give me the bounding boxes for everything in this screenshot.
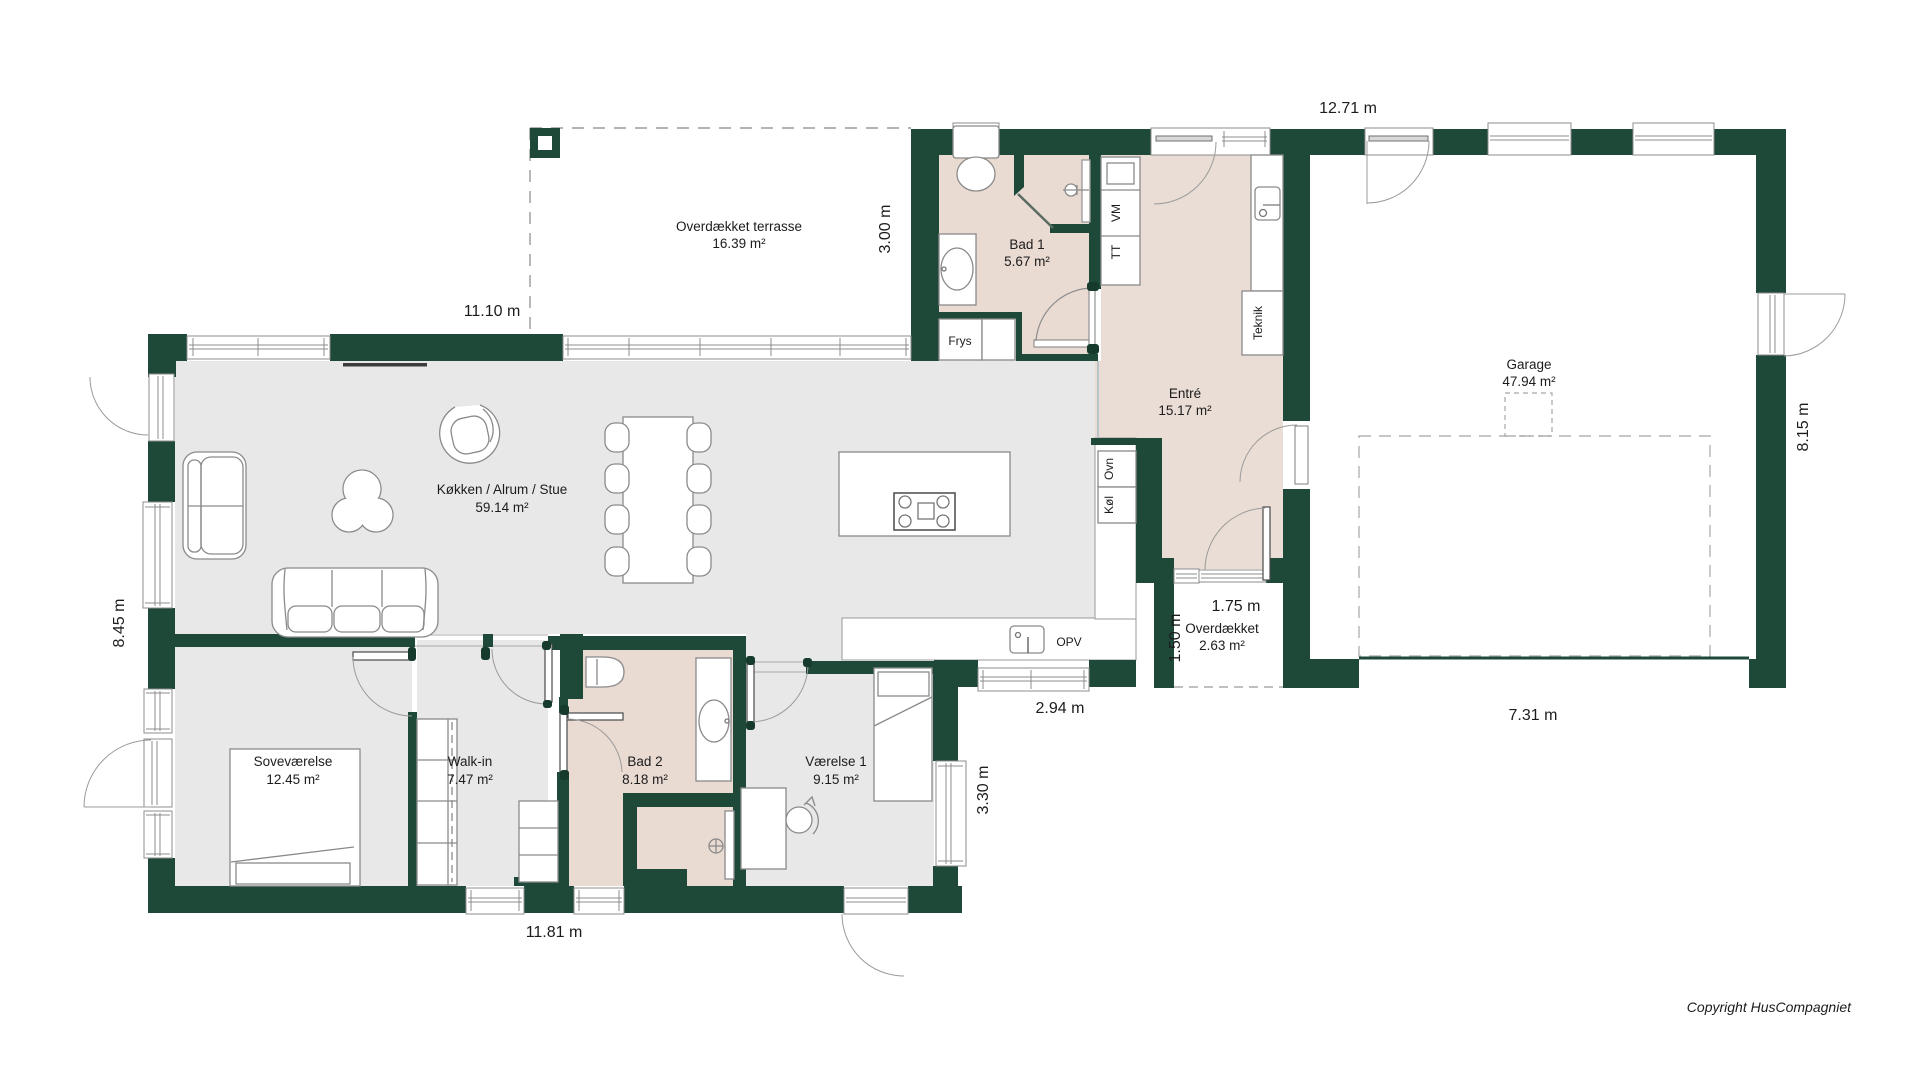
- svg-text:Køkken / Alrum / Stue: Køkken / Alrum / Stue: [437, 482, 568, 497]
- svg-text:2.94 m: 2.94 m: [1036, 700, 1085, 717]
- svg-text:47.94 m²: 47.94 m²: [1502, 374, 1556, 389]
- svg-text:Teknik: Teknik: [1251, 305, 1265, 340]
- svg-text:11.81 m: 11.81 m: [526, 924, 583, 941]
- svg-text:Ovn: Ovn: [1102, 458, 1116, 480]
- svg-text:Frys: Frys: [948, 334, 971, 348]
- svg-text:59.14 m²: 59.14 m²: [475, 500, 529, 515]
- svg-text:Køl: Køl: [1102, 496, 1116, 514]
- svg-text:Entré: Entré: [1169, 386, 1201, 401]
- svg-text:12.45 m²: 12.45 m²: [266, 772, 320, 787]
- svg-text:Soveværelse: Soveværelse: [254, 754, 333, 769]
- svg-text:Værelse 1: Værelse 1: [805, 754, 867, 769]
- svg-text:8.18 m²: 8.18 m²: [622, 772, 668, 787]
- svg-text:8.45 m: 8.45 m: [111, 599, 128, 648]
- svg-text:9.15 m²: 9.15 m²: [813, 772, 859, 787]
- svg-text:1.75 m: 1.75 m: [1212, 598, 1261, 615]
- svg-text:TT: TT: [1109, 244, 1123, 259]
- svg-text:2.63 m²: 2.63 m²: [1199, 638, 1245, 653]
- svg-text:Copyright HusCompagniet: Copyright HusCompagniet: [1687, 999, 1852, 1015]
- svg-text:16.39 m²: 16.39 m²: [712, 236, 766, 251]
- svg-text:3.30 m: 3.30 m: [975, 766, 992, 815]
- svg-text:Bad 2: Bad 2: [627, 754, 662, 769]
- svg-text:15.17 m²: 15.17 m²: [1158, 403, 1212, 418]
- svg-text:8.15 m: 8.15 m: [1795, 403, 1812, 452]
- svg-text:Overdækket: Overdækket: [1185, 621, 1259, 636]
- svg-text:Garage: Garage: [1506, 357, 1551, 372]
- svg-text:VM: VM: [1109, 204, 1123, 222]
- svg-text:12.71 m: 12.71 m: [1319, 100, 1377, 117]
- svg-text:Overdækket terrasse: Overdækket terrasse: [676, 219, 802, 234]
- svg-text:Walk-in: Walk-in: [448, 754, 493, 769]
- svg-text:7.47 m²: 7.47 m²: [447, 772, 493, 787]
- svg-text:5.67 m²: 5.67 m²: [1004, 254, 1050, 269]
- svg-text:3.00 m: 3.00 m: [877, 205, 894, 254]
- svg-text:7.31 m: 7.31 m: [1509, 707, 1558, 724]
- svg-text:OPV: OPV: [1056, 635, 1081, 649]
- svg-text:11.10 m: 11.10 m: [464, 303, 521, 320]
- svg-text:Bad 1: Bad 1: [1009, 237, 1044, 252]
- svg-text:1.50 m: 1.50 m: [1167, 614, 1184, 663]
